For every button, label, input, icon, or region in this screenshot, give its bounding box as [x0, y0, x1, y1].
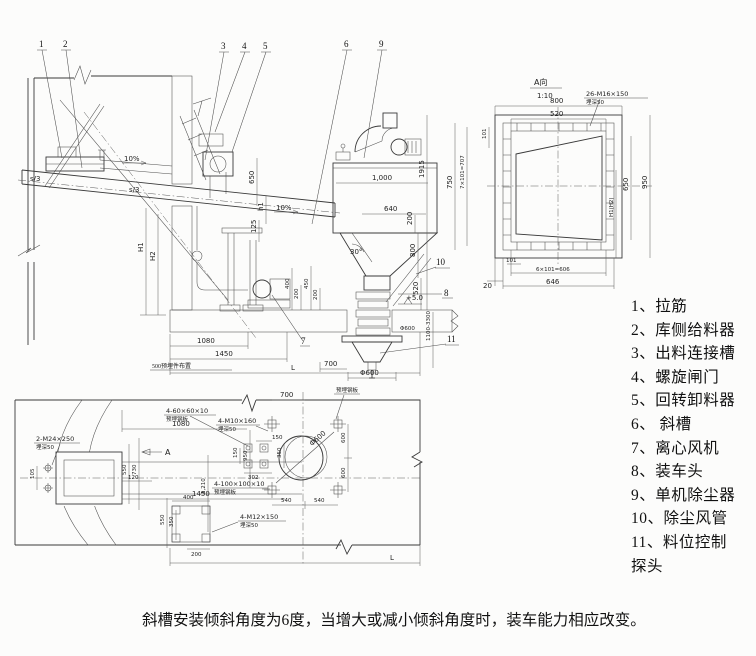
dim-1100-3300: 1100-3300 [426, 311, 432, 341]
label-m24-note: 埋深50 [36, 443, 54, 451]
pdim-730: 730 [132, 464, 138, 475]
pdim-550a: 550 [122, 464, 128, 475]
dim-200: 200 [406, 212, 414, 225]
label-60x60: 4-60×60×10 [166, 407, 208, 415]
pdim-200: 200 [191, 552, 202, 558]
dim-640: 640 [384, 205, 397, 213]
pdim-400: 400 [183, 495, 194, 501]
legend-item-6: 6、 斜槽 [631, 413, 755, 437]
pdim-L: L [390, 554, 394, 562]
dim-h1: h1 [257, 202, 265, 211]
dim-750: 750 [446, 176, 454, 189]
legend-item-7: 7、离心风机 [631, 437, 755, 461]
pdim-120: 120 [128, 475, 139, 481]
pdim-1080: 1080 [172, 420, 190, 428]
callout-9: 9 [379, 39, 384, 49]
callout-6: 6 [344, 39, 349, 49]
legend-item-5: 5、回转卸料器 [631, 389, 755, 413]
dim-s3-left: s/3 [30, 175, 40, 183]
legend-item-2: 2、库侧给料器 [631, 319, 755, 343]
dim-646: 646 [546, 278, 560, 286]
dim-H1: H1 [137, 242, 145, 252]
dim-H2: H2 [149, 251, 157, 261]
drawing-caption: 斜槽安装倾斜角度为6度，当增大或减小倾斜角度时，装车能力相应改变。 [142, 608, 682, 630]
pdim-950: 950 [243, 450, 249, 461]
dim-520: 520 [550, 110, 563, 118]
label-100x100-note: 预埋钢板 [214, 488, 237, 496]
tie-rod [45, 100, 256, 338]
engineering-drawing-sheet: 1 2 3 4 5 6 9 7 8 10 11 s/3 s/3 10% 10% … [0, 0, 756, 656]
bolt-note-sub: 埋深50 [586, 98, 604, 106]
dim-h1h2: H1(H2) [609, 197, 615, 217]
pdim-550b: 550 [160, 514, 166, 525]
legend-item-11b: 探头 [631, 555, 755, 579]
detail-view-a: A向 1:10 26-M16×150 埋深50 800 520 101 750 … [446, 77, 652, 290]
dim-1080: 1080 [197, 337, 215, 345]
dim-sup-200a: 200 [294, 288, 300, 299]
legend-item-10: 10、除尘风管 [631, 507, 755, 531]
dim-800: 800 [550, 97, 563, 105]
dim-s3-mid: s/3 [129, 186, 139, 194]
label-m24: 2-M24×250 [36, 435, 74, 443]
dim-800: 800 [409, 244, 417, 257]
callout-11: 11 [447, 334, 456, 344]
elevation-dimensions: s/3 s/3 10% 10% 650 h1 125 1,000 640 191… [30, 115, 433, 381]
floor-opening-circle: Φ600 [276, 429, 334, 483]
legend-item-8: 8、装车头 [631, 460, 755, 484]
elevation-view: 1 2 3 4 5 6 9 7 8 10 11 s/3 s/3 10% 10% … [18, 39, 459, 381]
dim-dia600-floor: Φ600 [400, 326, 415, 332]
pdim-700: 700 [280, 391, 293, 399]
dim-30deg: 30° [350, 248, 362, 256]
dim-520: 520 [412, 282, 420, 295]
detail-title: A向 [534, 77, 547, 87]
dim-7x101: 7×101=707 [460, 155, 466, 189]
plan-view: 2-M24×250 埋深50 4-60×60×10 预埋钢板 4-M10×160… [15, 386, 422, 566]
dim-101-top: 101 [482, 129, 488, 140]
callout-8: 8 [444, 288, 449, 298]
dim-950: 950 [641, 176, 649, 189]
pdim-150b: 150 [233, 447, 239, 458]
dim-sup-200b: 200 [313, 289, 319, 300]
pdim-350b: 350 [169, 516, 175, 527]
pdim-1210: 1,210 [201, 478, 207, 494]
dim-slope-1: 10% [124, 155, 140, 163]
callout-7: 7 [301, 336, 306, 346]
label-m12: 4-M12×150 [240, 513, 278, 521]
dim-20: 20 [483, 282, 492, 290]
legend: 1、拉筋 2、库侧给料器 3、出料连接槽 4、螺旋闸门 5、回转卸料器 6、 斜… [631, 295, 755, 578]
dim-650-d: 650 [622, 178, 630, 191]
callout-10: 10 [436, 257, 446, 267]
air-slide-chute [18, 147, 340, 217]
dim-dia600-plan: Φ600 [308, 429, 327, 447]
legend-item-11: 11、料位控制 [631, 531, 755, 555]
callout-5: 5 [263, 41, 268, 51]
pdim-540a: 540 [281, 498, 292, 504]
dim-125: 125 [250, 220, 258, 233]
dim-1000: 1,000 [372, 174, 392, 182]
legend-item-1: 1、拉筋 [631, 295, 755, 319]
callout-4: 4 [242, 41, 247, 51]
dim-sup-400: 400 [285, 278, 291, 289]
bolt-note: 26-M16×150 [586, 90, 628, 98]
dim-6x101: 6×101=606 [536, 267, 570, 273]
callout-1: 1 [39, 39, 44, 49]
pdim-600b: 600 [341, 467, 347, 478]
legend-item-9: 9、单机除尘器 [631, 484, 755, 508]
silo-wall [18, 66, 192, 345]
dim-700: 700 [324, 360, 337, 368]
pdim-302: 302 [248, 475, 259, 481]
label-m12-note: 埋深50 [240, 521, 258, 529]
label-m10: 4-M10×160 [218, 417, 256, 425]
bolt-group-m12 [172, 506, 210, 542]
legend-item-4: 4、螺旋闸门 [631, 366, 755, 390]
label-100x100: 4-100×100×10 [214, 480, 264, 488]
centrifugal-fan [192, 206, 290, 308]
level-mark: +5.0 [406, 294, 423, 302]
discharge-assembly [180, 98, 263, 311]
callout-2: 2 [63, 39, 68, 49]
dim-slope-2: 10% [276, 204, 292, 212]
note-500: 500预埋件布置 [152, 362, 191, 370]
dim-1450: 1450 [215, 350, 233, 358]
dim-650: 650 [248, 171, 256, 184]
pdim-350a: 350 [277, 447, 283, 458]
view-arrow-A: A [165, 448, 171, 457]
pdim-600a: 600 [341, 432, 347, 443]
legend-item-3: 3、出料连接槽 [631, 342, 755, 366]
callout-3: 3 [221, 41, 226, 51]
dim-1915: 1915 [418, 160, 426, 178]
pdim-150a: 150 [272, 435, 283, 441]
label-plate: 预埋钢板 [336, 386, 359, 394]
dim-L: L [291, 364, 295, 372]
pdim-105: 105 [30, 468, 36, 479]
dim-sup-450: 450 [304, 278, 310, 289]
pdim-540b: 540 [314, 498, 325, 504]
